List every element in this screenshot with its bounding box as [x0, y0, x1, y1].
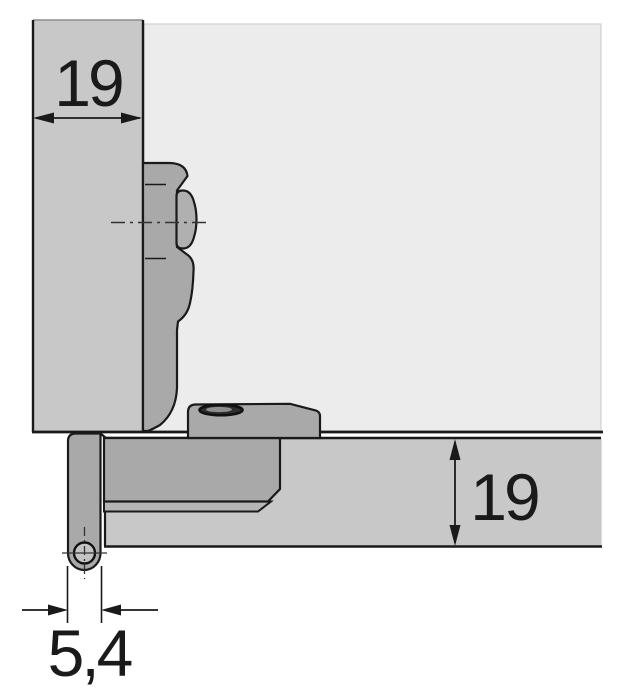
hinge-arm-lip [104, 502, 271, 512]
pivot-dim-arrowhead-right [101, 605, 121, 616]
pivot-offset-label: 5,4 [48, 616, 132, 690]
mounting-screw-head [177, 191, 197, 249]
flange-screw-hole-highlight [206, 407, 232, 412]
hinge-arm-horizontal [104, 438, 280, 502]
pivot-offset-dimension: 5,4 [22, 566, 158, 690]
pivot-dim-arrowhead-left [48, 605, 68, 616]
panel-thickness-label: 19 [54, 46, 122, 120]
cabinet-interior-background [144, 24, 601, 431]
door-thickness-label: 19 [470, 460, 538, 534]
diagram-canvas: 19 19 5,4 [0, 0, 632, 700]
hinge-cross-section-diagram: 19 19 5,4 [0, 0, 632, 700]
